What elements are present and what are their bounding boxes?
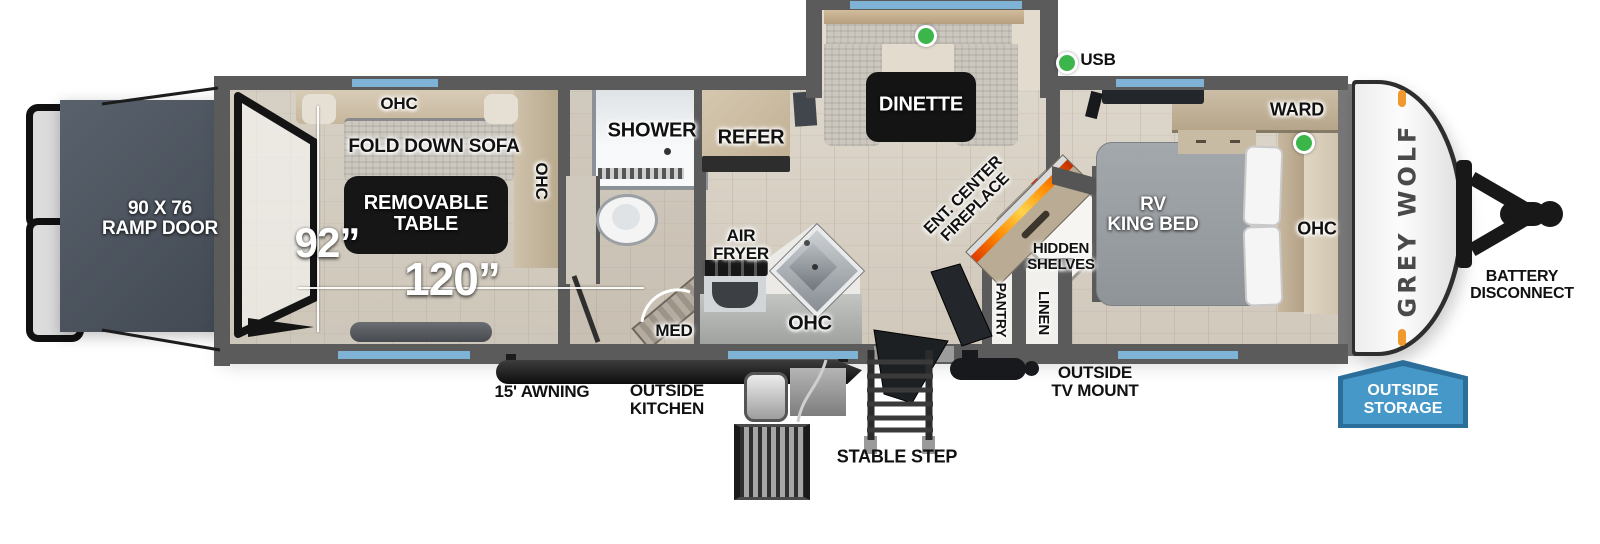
usb-legend-label: USB <box>1080 51 1115 69</box>
outside-tv-mount-bar <box>950 358 1026 380</box>
removable-table-label: REMOVABLE TABLE <box>364 193 489 235</box>
entry-doorway <box>874 346 954 362</box>
outside-kitchen-counter <box>790 368 846 416</box>
outside-tv-mount-cap <box>1024 361 1039 376</box>
outside-kitchen-label: OUTSIDE KITCHEN <box>630 382 704 418</box>
dinette-label: DINETTE <box>879 94 963 115</box>
floorplan: 90 X 76 RAMP DOOR <box>0 0 1600 544</box>
slide-right-wall <box>1040 0 1058 98</box>
slide-window <box>850 1 1022 9</box>
hitch <box>1456 160 1563 268</box>
shower-label: SHOWER <box>608 120 697 141</box>
cabinet-handle-2 <box>1230 140 1240 143</box>
sofa-arm-left <box>302 94 336 124</box>
ohc-bedroom-label: OHC <box>1297 219 1336 238</box>
clearance-light-bottom <box>1398 329 1406 346</box>
ohc-kitchen-label: OHC <box>788 313 832 334</box>
garage-width-dim: 92” <box>295 219 360 267</box>
pantry-label: PANTRY <box>994 283 1009 338</box>
outside-tv-mount-tab <box>962 350 978 359</box>
hidden-shelves-label: HIDDEN SHELVES <box>1027 241 1095 273</box>
usb-marker-legend <box>1056 52 1078 74</box>
bedroom-bottom-window <box>1118 351 1238 359</box>
awning-label: 15' AWNING <box>495 383 590 401</box>
shower-threshold <box>598 168 684 179</box>
dinette-shelf <box>824 8 1024 24</box>
sofa-arm-right <box>484 94 518 124</box>
shower-drain <box>664 148 671 155</box>
garage-bottom-bench <box>350 322 492 342</box>
stable-step-label: STABLE STEP <box>837 447 957 466</box>
garage-top-window <box>352 79 438 87</box>
slide-left-wall <box>806 0 822 98</box>
toilet-bowl <box>612 204 640 230</box>
rv-king-bed-label: RV KING BED <box>1107 195 1198 235</box>
bed-pillow-bottom <box>1243 225 1284 306</box>
pantry-linen-wall <box>1012 258 1026 346</box>
air-fryer-label: AIR FRYER <box>713 227 769 263</box>
range-oven <box>712 282 758 308</box>
outside-kitchen-sink <box>744 372 788 422</box>
kitchen-bottom-window <box>728 351 858 359</box>
top-wall-left <box>214 76 810 90</box>
garage-bottom-window <box>338 351 470 359</box>
battery-disconnect-label: BATTERY DISCONNECT <box>1470 269 1574 303</box>
outside-storage-label: OUTSIDE STORAGE <box>1364 382 1443 424</box>
bath-partition <box>566 176 600 284</box>
med-label: MED <box>655 322 692 340</box>
refer-label: REFER <box>718 127 785 148</box>
bedroom-top-window <box>1116 79 1204 87</box>
outside-tv-mount-label: OUTSIDE TV MOUNT <box>1051 364 1138 400</box>
brand-logo: GREY WOLF <box>1395 123 1420 318</box>
stable-step-ladder <box>864 350 935 454</box>
clearance-light-top <box>1398 90 1406 107</box>
refrigerator-base <box>702 156 790 172</box>
linen-label: LINEN <box>1035 291 1051 335</box>
cabinet-handle-1 <box>1196 140 1206 143</box>
usb-marker-bedroom <box>1293 132 1315 154</box>
ward-label: WARD <box>1270 100 1324 119</box>
usb-marker-dinette <box>915 25 937 47</box>
ohc-garage-top-label: OHC <box>380 95 417 113</box>
fold-down-sofa-label: FOLD DOWN SOFA <box>348 137 519 157</box>
garage-length-dim: 120” <box>404 252 500 306</box>
bedroom-tv <box>1102 88 1204 104</box>
bed-pillow-top <box>1243 145 1284 226</box>
sink-faucet <box>804 240 810 246</box>
ramp-door-label: 90 X 76 RAMP DOOR <box>102 199 218 239</box>
outside-griddle <box>734 424 810 500</box>
ward-lower-cabinet <box>1178 130 1256 154</box>
refrigerator <box>702 86 790 162</box>
ohc-garage-right-label: OHC <box>532 162 550 199</box>
sink-drain <box>812 264 818 270</box>
